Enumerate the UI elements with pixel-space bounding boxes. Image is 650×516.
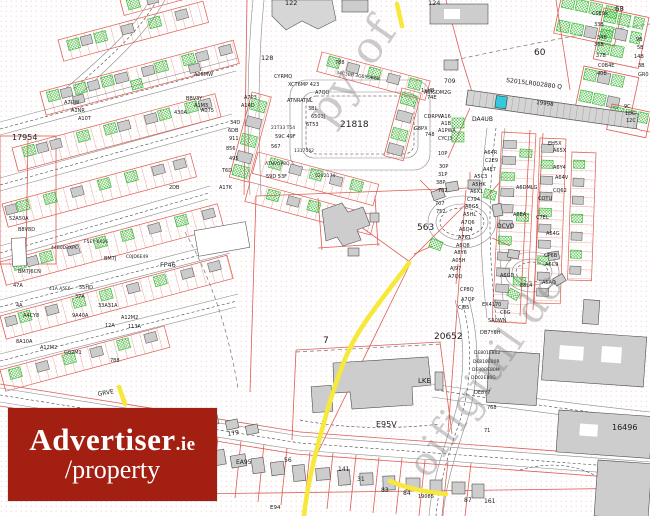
map-label: B8V8D: [18, 227, 35, 233]
map-label: A10T: [78, 116, 92, 122]
map-label: A5C3: [474, 174, 487, 180]
map-label: DCVD: [497, 223, 515, 230]
map-label: 83: [381, 487, 389, 494]
map-label: A761: [458, 235, 471, 241]
map-label: A4CY8: [23, 313, 39, 319]
map-label: A65X: [553, 148, 567, 154]
map-label: 38P: [436, 180, 445, 186]
map-label: 37A: [75, 294, 85, 300]
map-label: E94: [270, 505, 281, 511]
map-label: 31P: [438, 172, 447, 178]
logo-tld: .ie: [176, 434, 196, 455]
map-label: 37B: [596, 53, 606, 59]
map-label: 9B: [636, 37, 643, 43]
map-label: 709: [444, 78, 456, 85]
map-label: 567: [271, 144, 281, 150]
map-label: 30P: [439, 164, 448, 170]
map-label: E95V: [376, 420, 397, 429]
map-label: C0B4E: [598, 63, 614, 69]
map-label: 707: [435, 201, 445, 207]
map-label: A4E7: [483, 167, 496, 173]
map-label: 122: [285, 0, 297, 7]
map-label: A6C9: [545, 262, 558, 268]
map-label: 563: [417, 223, 434, 233]
map-label: 34B: [597, 35, 607, 41]
map-label: T6D: [221, 168, 232, 174]
map-label: 59D 53F: [266, 174, 287, 180]
map-label: CP8Q: [460, 287, 474, 293]
map-label: 128: [261, 54, 273, 62]
map-label: 124: [428, 0, 440, 7]
map-label: A8Y6: [454, 250, 467, 256]
map-label: 6T53: [306, 122, 319, 128]
map-label: AJ97: [450, 266, 461, 272]
map-label: GR0: [638, 72, 649, 78]
map-label: A7Q6: [461, 220, 475, 226]
map-label: 52A50A: [9, 216, 29, 222]
map-label: 748: [425, 132, 435, 138]
map-label: A6GD: [500, 273, 514, 279]
map-label: 6DB: [228, 128, 239, 134]
map-label: 52V2174: [315, 173, 335, 179]
map-label: A6Y4: [553, 165, 566, 171]
map-label: 68: [615, 5, 624, 13]
map-label: 14B: [634, 54, 644, 60]
map-label: 17954: [12, 133, 37, 142]
logo-brand: Advertiser: [29, 422, 175, 457]
map-label: DA4UB: [472, 116, 493, 123]
map-label: C0JD6E49: [126, 254, 148, 260]
map-label: CYCJ3: [438, 136, 452, 142]
map-label: BM7J6CN: [18, 269, 41, 275]
map-label: 20652: [434, 332, 463, 342]
map-label: BM7J: [104, 256, 116, 262]
map-label: 5B: [637, 45, 644, 51]
map-label: A05MW: [194, 72, 213, 78]
map-label: A7P3: [244, 95, 257, 101]
map-label: A1NR: [71, 108, 85, 114]
map-label: 12C: [626, 118, 636, 124]
map-label: A7QQ: [448, 274, 463, 280]
map-label: 1aHB: [421, 88, 435, 94]
map-label: A7QW: [64, 100, 80, 106]
map-label: LKE: [418, 377, 431, 385]
map-label: 430A: [174, 110, 188, 116]
map-label: A6DMLG: [516, 185, 538, 191]
map-label: 71: [484, 428, 490, 434]
highlight-plot[interactable]: [495, 96, 508, 109]
map-label: 21T33 T54: [271, 125, 295, 131]
logo-line2: /property: [8, 456, 217, 485]
map-label: A14D: [241, 103, 255, 109]
map-label: 55HD: [79, 285, 93, 291]
map-label: 752: [436, 209, 446, 215]
map-label: A64R: [484, 150, 498, 156]
map-label: 74E: [427, 95, 437, 101]
map-label: A64V: [555, 175, 569, 181]
map-label: CJ85: [458, 305, 469, 311]
map-label: 60: [534, 48, 546, 58]
map-label: 33A31A: [98, 303, 118, 309]
map-label: 7: [323, 336, 329, 346]
map-label: 47A: [13, 283, 23, 289]
map-label: 856: [226, 146, 236, 152]
map-label: EX4170: [482, 302, 501, 308]
map-label: 87: [464, 497, 472, 504]
map-label: 10P: [438, 151, 447, 157]
map-label: A6Q8: [456, 243, 470, 249]
map-label: 19085: [418, 494, 434, 500]
map-label: 8A10A: [16, 339, 33, 345]
map-label: A075: [201, 108, 214, 114]
map-label: C794: [467, 197, 480, 203]
map-label: 9C: [624, 104, 631, 110]
map-label: 788: [110, 358, 120, 364]
logo-line1: Advertiser.ie: [8, 424, 217, 457]
map-label: A12M2: [40, 345, 57, 351]
map-label: A6EA: [513, 212, 527, 218]
map-label: C7EL: [536, 215, 549, 221]
map-label: 40B: [597, 71, 607, 77]
map-label: 56: [284, 457, 292, 464]
map-label: EA95: [236, 459, 252, 466]
map-label: A12M2: [121, 315, 138, 321]
map-label: A6G5: [465, 204, 479, 210]
map-label: 34D: [230, 120, 240, 126]
map-label: A5HK: [472, 182, 486, 188]
map-label: 9A40A: [72, 313, 89, 319]
map-label: 59C 49F: [275, 134, 296, 140]
map-label: A6X1: [470, 189, 483, 195]
map-label: 31: [357, 476, 365, 483]
map-label: ATNVQP8Q: [265, 161, 290, 167]
map-label: C2E9: [485, 158, 498, 164]
map-label: A1B: [441, 121, 452, 127]
map-label: 702: [438, 188, 448, 194]
map-label: CYRMQ: [274, 74, 292, 80]
map-label: EH5X: [548, 141, 562, 147]
map-label: 12A: [105, 323, 115, 329]
map-label: 141: [338, 466, 350, 473]
map-label: 36B: [594, 42, 604, 48]
map-label: 1DC: [625, 111, 636, 117]
map-label: 495: [229, 156, 239, 162]
map-label: CQ62: [553, 188, 567, 194]
map-label: F5EY 6X26: [84, 239, 108, 245]
map-label: CDRPW: [424, 114, 443, 120]
map-label: A64G: [546, 231, 560, 237]
map-screenshot: 1795421818563720652E95V60681649612212412…: [0, 0, 650, 516]
map-label: 911: [229, 136, 239, 142]
map-label: 33B: [594, 22, 604, 28]
map-label: 4A: [16, 303, 23, 309]
map-label: 161: [484, 498, 496, 505]
map-label: BBV3Y: [186, 96, 203, 102]
advertiser-property-logo: Advertiser.ie /property: [8, 408, 217, 501]
map-label: 1317562: [294, 148, 314, 154]
map-label: A05H: [452, 258, 466, 264]
map-label: 16496: [612, 423, 637, 432]
map-label: C0E9x: [592, 11, 608, 17]
map-label: A5HL: [463, 212, 476, 218]
map-label: CQTU: [538, 196, 552, 202]
map-label: 41A A5F6: [49, 286, 71, 292]
map-label: A1PWA: [438, 128, 456, 134]
map-label: 2DB: [169, 185, 180, 191]
map-label: 44B0D3XPC: [51, 245, 78, 251]
map-label: A6Q4: [459, 227, 473, 233]
map-label: A7QP: [461, 297, 475, 303]
map-label: 3B: [638, 63, 645, 69]
map-label: A17K: [219, 185, 233, 191]
map-label: 84: [403, 490, 411, 497]
map-label: G02M1: [64, 350, 82, 356]
map-label: CP6B: [544, 253, 558, 259]
map-label: 113A: [128, 324, 142, 330]
map-label: FF46: [160, 261, 176, 269]
